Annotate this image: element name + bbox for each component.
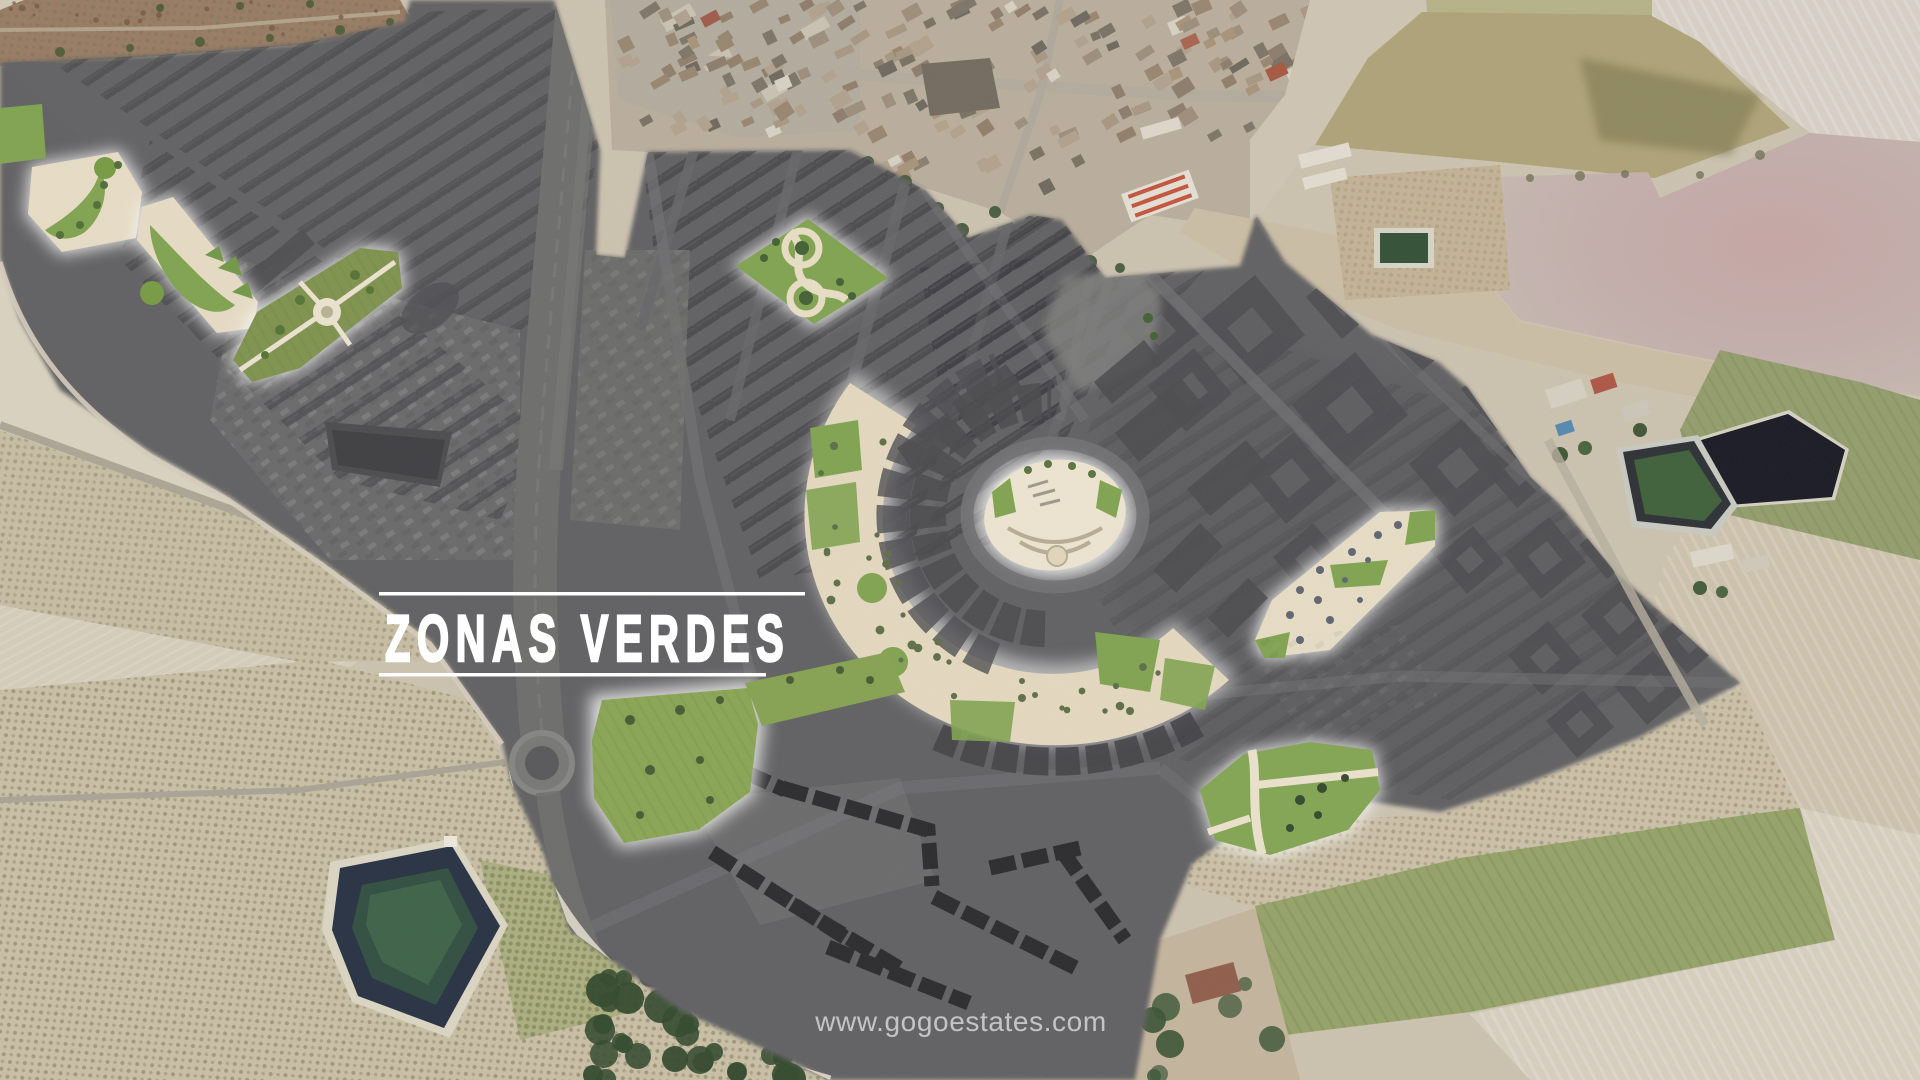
svg-text:ZONAS VERDES: ZONAS VERDES — [385, 601, 789, 675]
svg-text:www.gogoestates.com: www.gogoestates.com — [814, 1006, 1107, 1037]
